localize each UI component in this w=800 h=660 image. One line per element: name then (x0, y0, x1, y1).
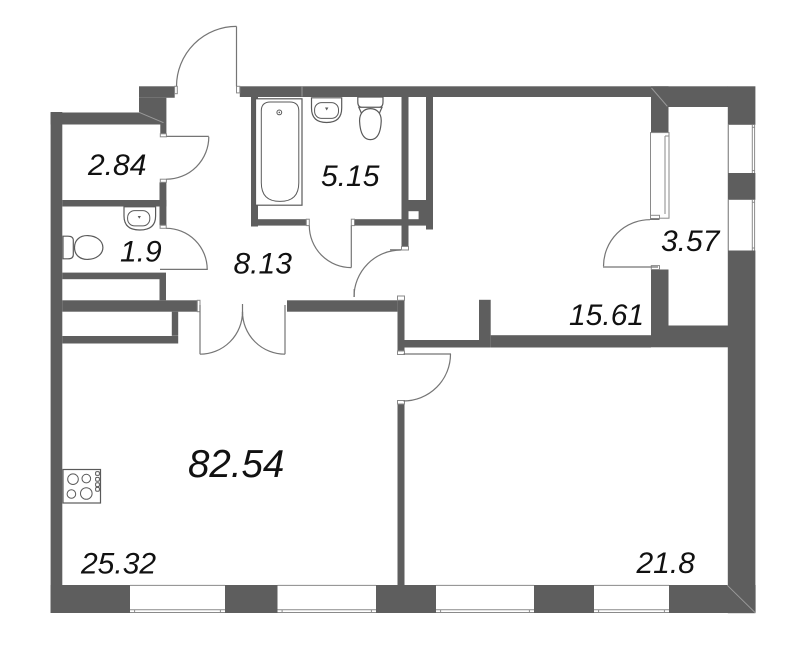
svg-text:15.61: 15.61 (569, 299, 644, 332)
svg-text:2.84: 2.84 (87, 149, 146, 182)
svg-text:21.8: 21.8 (636, 547, 696, 580)
svg-text:82.54: 82.54 (188, 443, 284, 486)
svg-text:1.9: 1.9 (120, 236, 162, 269)
svg-text:25.32: 25.32 (80, 548, 156, 581)
svg-text:8.13: 8.13 (234, 248, 293, 281)
svg-text:5.15: 5.15 (321, 160, 380, 193)
svg-text:3.57: 3.57 (661, 225, 721, 258)
